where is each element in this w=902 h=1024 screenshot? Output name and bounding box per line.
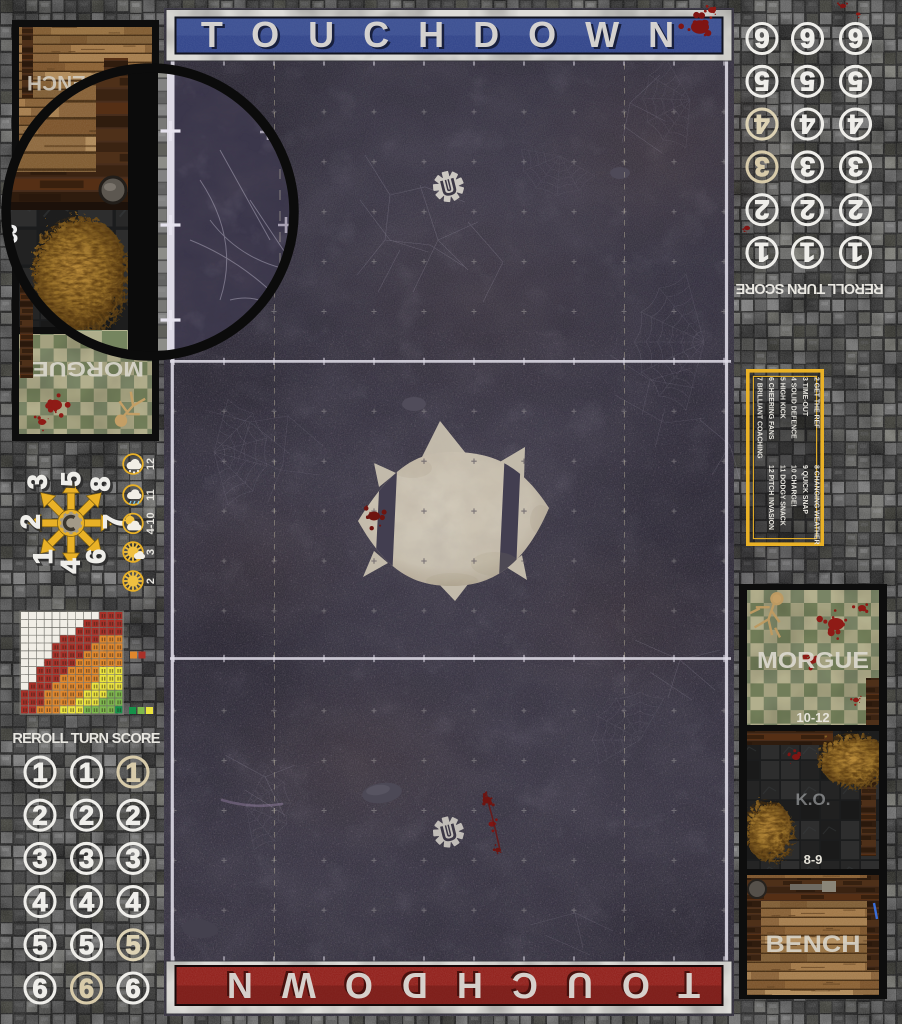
svg-text:3: 3	[145, 549, 157, 555]
svg-text:5: 5	[56, 471, 86, 486]
svg-text:1: 1	[28, 549, 58, 564]
svg-text:5: 5	[79, 930, 94, 960]
svg-text:3: 3	[79, 844, 94, 874]
svg-text:MORGUE: MORGUE	[757, 647, 869, 673]
svg-text:1: 1	[32, 757, 47, 787]
svg-text:TOUCHDOWN: TOUCHDOWN	[201, 14, 703, 55]
svg-text:1: 1	[79, 757, 94, 787]
svg-text:2: 2	[79, 801, 94, 831]
svg-text:5: 5	[32, 930, 47, 960]
svg-text:7 BRILLIANT COACHING: 7 BRILLIANT COACHING	[756, 377, 763, 459]
svg-text:3: 3	[754, 152, 769, 182]
svg-text:2: 2	[848, 194, 863, 224]
svg-text:2: 2	[15, 514, 45, 529]
svg-text:12 PITCH INVASION: 12 PITCH INVASION	[767, 465, 774, 530]
svg-text:MORGUE: MORGUE	[32, 357, 144, 380]
svg-text:REROLL TURN SCORE: REROLL TURN SCORE	[12, 731, 160, 747]
svg-text:1: 1	[754, 237, 769, 267]
svg-text:11: 11	[145, 489, 157, 501]
svg-text:2 GET THE REF: 2 GET THE REF	[813, 377, 820, 428]
svg-text:6: 6	[754, 23, 769, 53]
svg-text:2: 2	[754, 194, 769, 224]
svg-text:2: 2	[800, 194, 815, 224]
svg-text:4: 4	[754, 109, 769, 139]
svg-text:4: 4	[32, 887, 47, 917]
svg-text:6: 6	[81, 549, 111, 564]
svg-text:3: 3	[800, 152, 815, 182]
svg-text:8: 8	[86, 476, 116, 491]
svg-text:3 TIME-OUT: 3 TIME-OUT	[801, 377, 808, 417]
svg-text:3: 3	[23, 474, 53, 489]
svg-text:K.O.: K.O.	[796, 790, 831, 809]
svg-text:10 CHARGE!: 10 CHARGE!	[790, 465, 797, 507]
svg-text:2: 2	[145, 578, 157, 584]
svg-text:6: 6	[32, 973, 47, 1003]
svg-text:3: 3	[125, 844, 140, 874]
svg-text:6: 6	[79, 973, 94, 1003]
svg-text:10-12: 10-12	[796, 710, 829, 725]
svg-text:1: 1	[125, 757, 140, 787]
svg-text:11 DODGY SNACK: 11 DODGY SNACK	[778, 465, 785, 526]
svg-text:4: 4	[125, 887, 140, 917]
svg-text:12: 12	[145, 458, 157, 470]
svg-text:TOUCHDOWN: TOUCHDOWN	[198, 965, 700, 1006]
svg-text:5 HIGH KICK: 5 HIGH KICK	[778, 377, 785, 419]
svg-text:5: 5	[754, 66, 769, 96]
svg-text:8-9: 8-9	[804, 852, 823, 867]
svg-text:3: 3	[848, 152, 863, 182]
svg-text:5: 5	[800, 66, 815, 96]
svg-text:6: 6	[848, 23, 863, 53]
svg-text:6: 6	[800, 23, 815, 53]
svg-text:5: 5	[848, 66, 863, 96]
svg-text:2: 2	[32, 801, 47, 831]
svg-text:9 QUICK SNAP: 9 QUICK SNAP	[801, 465, 808, 514]
svg-text:REROLL TURN SCORE: REROLL TURN SCORE	[735, 280, 883, 296]
svg-text:4 SOLID DEFENCE: 4 SOLID DEFENCE	[790, 377, 797, 439]
svg-text:1: 1	[800, 237, 815, 267]
svg-text:4-10: 4-10	[145, 512, 157, 534]
svg-text:2: 2	[125, 801, 140, 831]
svg-text:4: 4	[79, 887, 94, 917]
svg-text:3: 3	[32, 844, 47, 874]
svg-text:5: 5	[125, 930, 140, 960]
svg-text:1: 1	[848, 237, 863, 267]
svg-text:BENCH: BENCH	[766, 931, 861, 958]
svg-text:6: 6	[125, 973, 140, 1003]
svg-text:4: 4	[800, 109, 815, 139]
svg-text:6 CHEERING FANS: 6 CHEERING FANS	[767, 377, 774, 440]
svg-text:4: 4	[848, 109, 863, 139]
svg-text:8 CHANGING WEATHER: 8 CHANGING WEATHER	[813, 465, 820, 545]
